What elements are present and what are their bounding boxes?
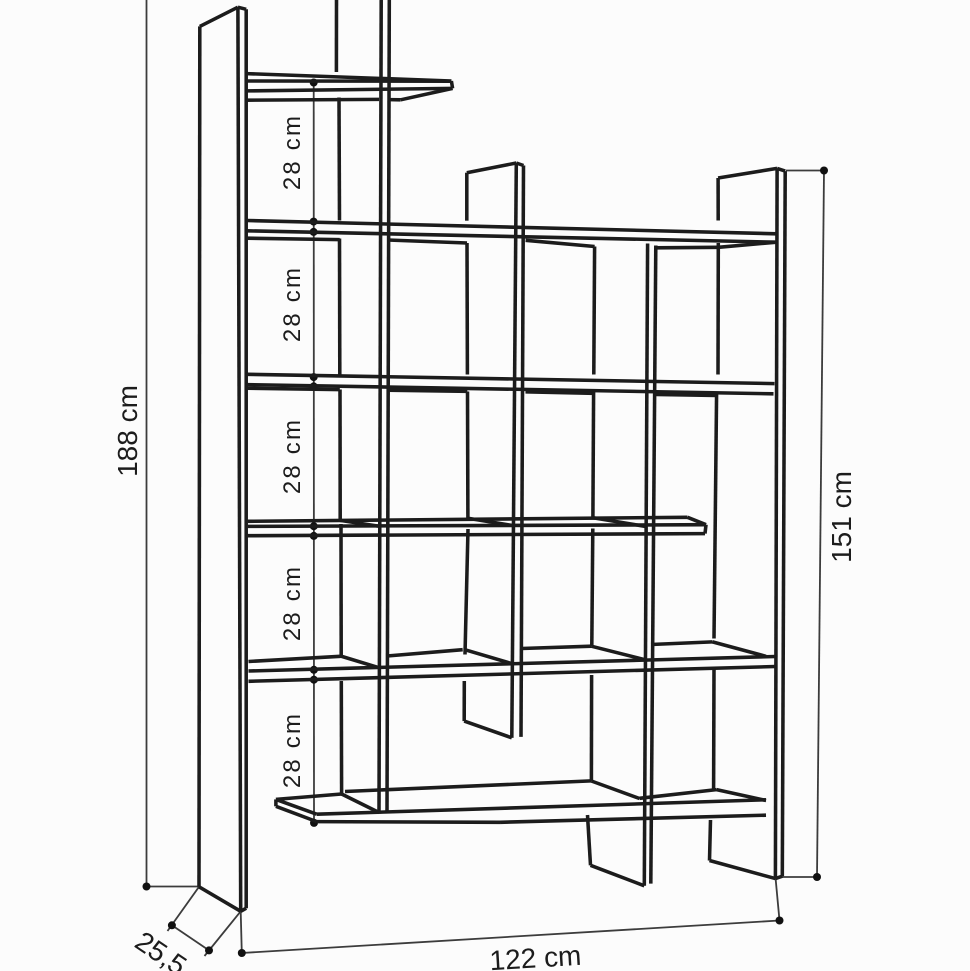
svg-text:28 cm: 28 cm: [279, 418, 306, 494]
svg-text:28 cm: 28 cm: [279, 565, 306, 641]
svg-text:151 cm: 151 cm: [826, 471, 857, 563]
svg-text:28 cm: 28 cm: [279, 712, 306, 788]
svg-text:188 cm: 188 cm: [112, 385, 143, 477]
svg-text:122 cm: 122 cm: [489, 940, 583, 971]
svg-text:28 cm: 28 cm: [279, 266, 306, 342]
svg-text:28 cm: 28 cm: [279, 114, 306, 190]
